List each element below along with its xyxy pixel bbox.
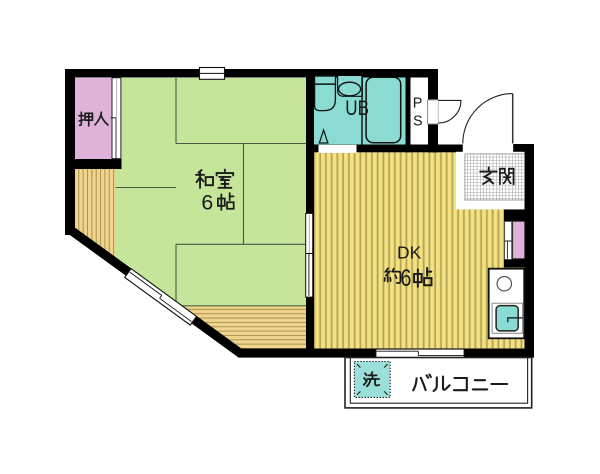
svg-text:DK: DK <box>397 242 421 262</box>
svg-text:S: S <box>413 113 423 129</box>
svg-text:UB: UB <box>345 97 369 120</box>
svg-text:P: P <box>413 96 423 112</box>
svg-text:6: 6 <box>400 264 411 292</box>
svg-text:6: 6 <box>201 190 213 214</box>
